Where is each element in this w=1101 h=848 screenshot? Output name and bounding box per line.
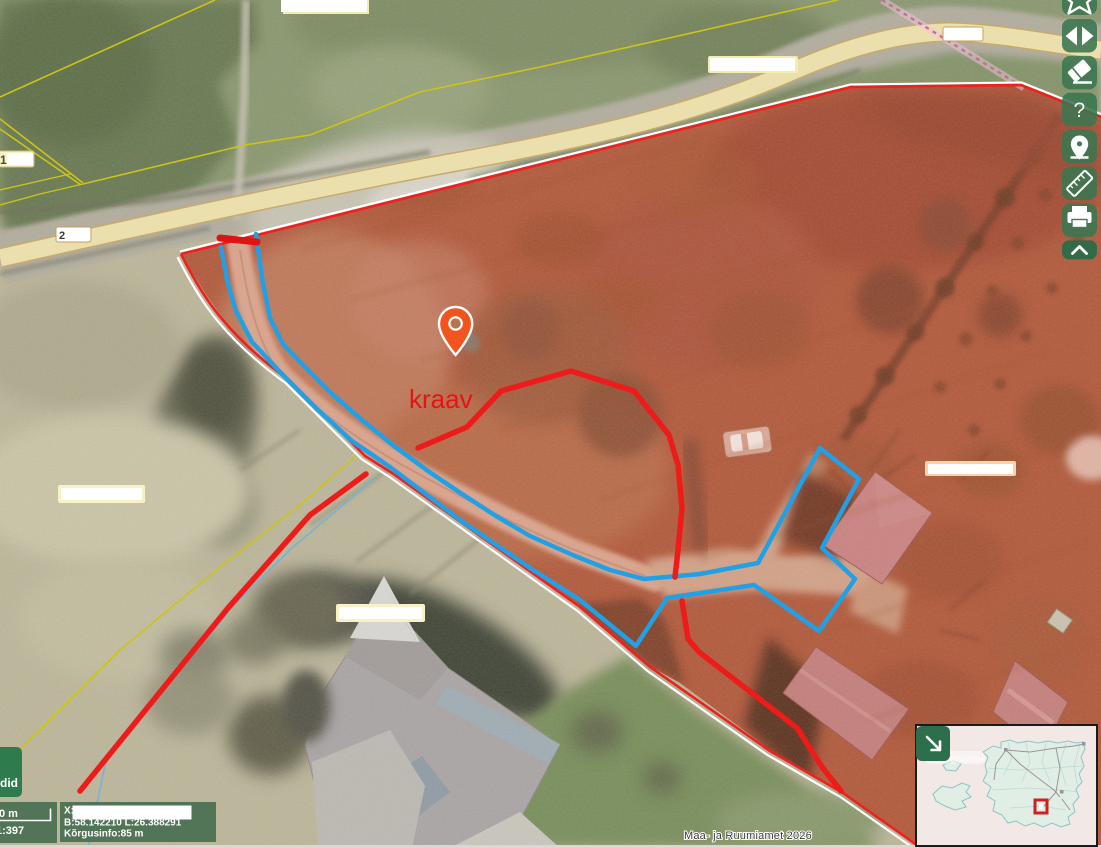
- svg-text:enurme: enurme: [950, 754, 987, 765]
- svg-text:2: 2: [59, 230, 65, 242]
- svg-text:Maa- ja Ruumiamet 2026: Maa- ja Ruumiamet 2026: [684, 830, 812, 842]
- svg-text:B:58.142210 L:26.388291: B:58.142210 L:26.388291: [64, 818, 182, 829]
- svg-text:kraav: kraav: [409, 384, 473, 414]
- svg-text:0 m: 0 m: [0, 808, 18, 820]
- svg-text:did: did: [0, 776, 18, 790]
- svg-text:1:397: 1:397: [0, 825, 24, 837]
- svg-text:1: 1: [0, 153, 7, 167]
- svg-text:?: ?: [1074, 99, 1086, 122]
- svg-text:Kõrgusinfo:85 m: Kõrgusinfo:85 m: [64, 829, 144, 840]
